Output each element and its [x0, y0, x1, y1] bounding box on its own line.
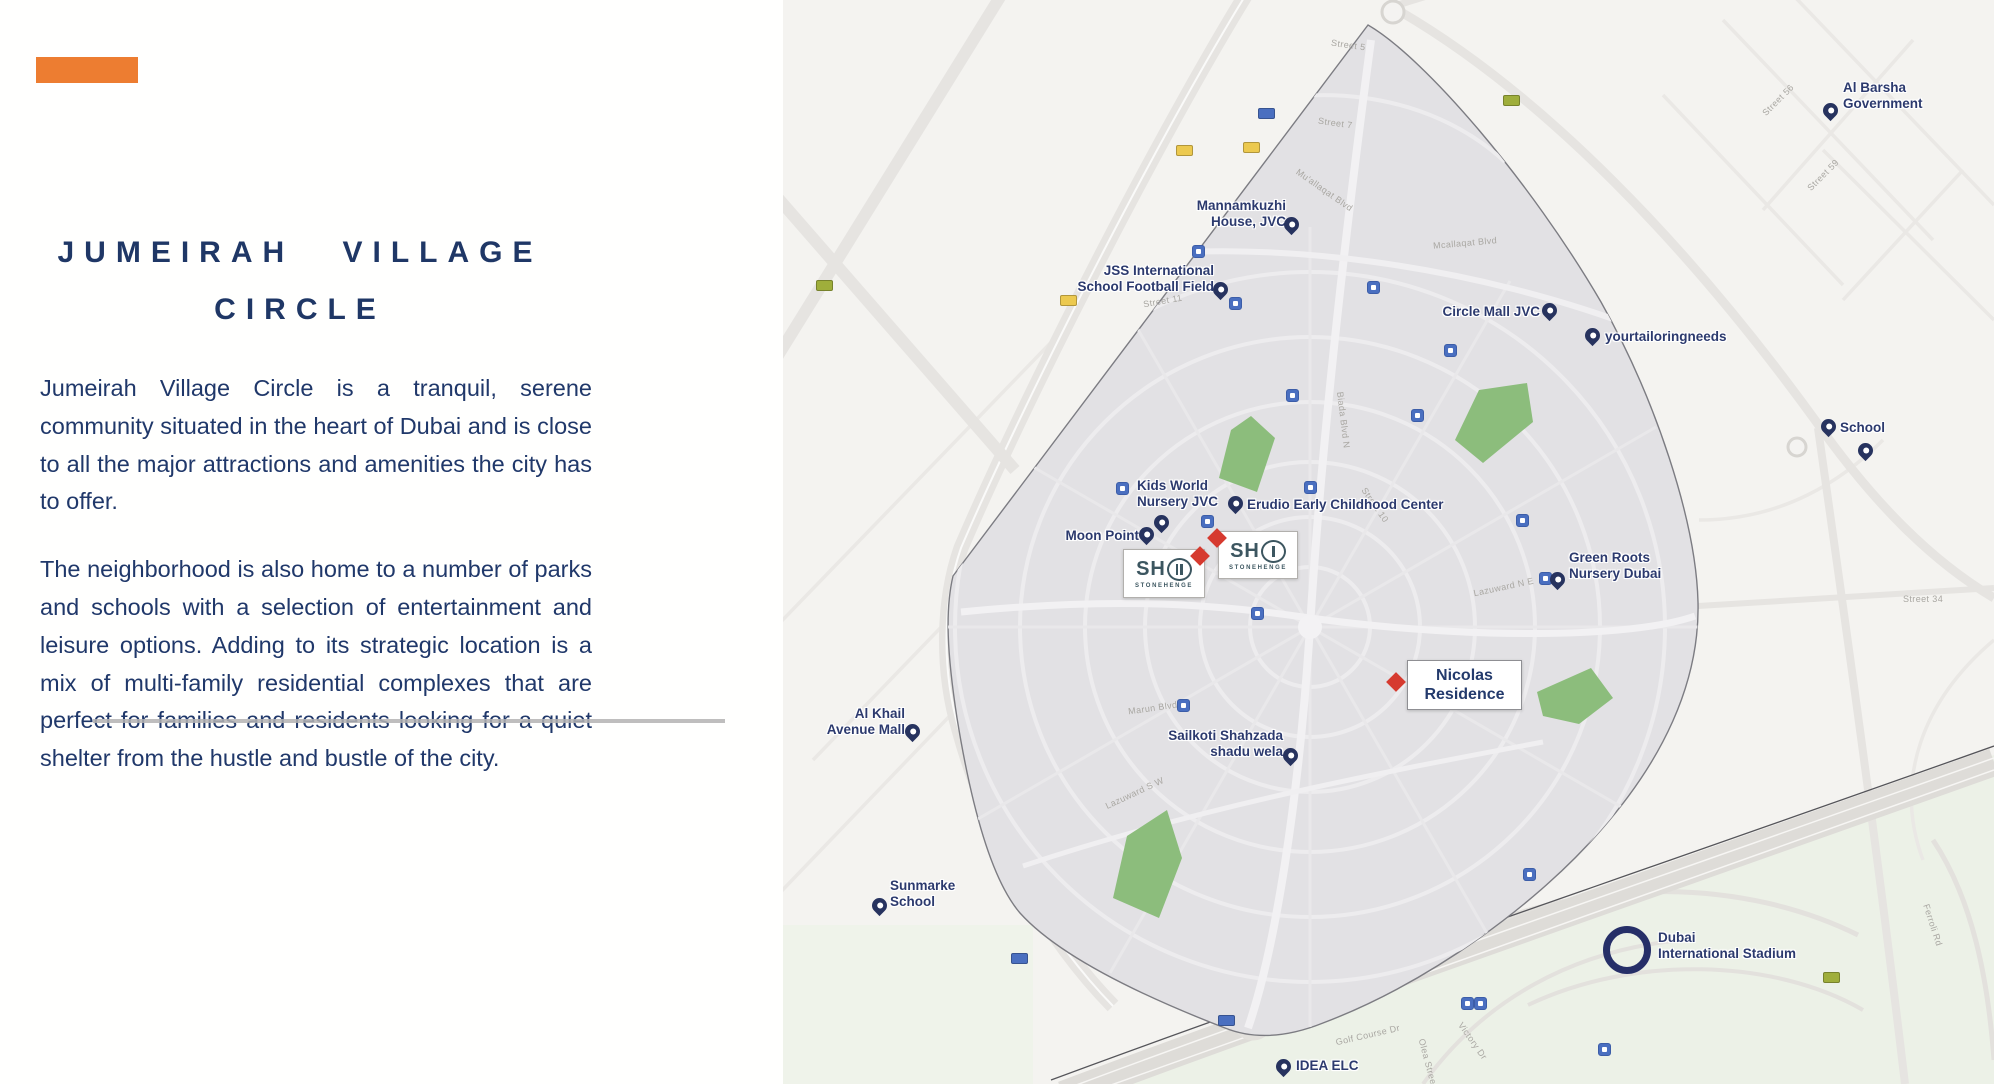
map-label-line: Government — [1843, 96, 1923, 112]
sho-logo-caption: STONEHENGE — [1229, 565, 1287, 571]
map-label-line: Sailkoti Shahzada — [1168, 728, 1283, 744]
map-label-line: School Football Field — [1078, 279, 1215, 295]
transit-stop-icon[interactable] — [1516, 514, 1529, 527]
sho-logo-bar — [1176, 564, 1179, 575]
transit-stop-icon[interactable] — [1523, 868, 1536, 881]
route-shield-icon — [1823, 972, 1840, 983]
map-label-line: Sunmarke — [890, 878, 955, 894]
page-title-line2: CIRCLE — [30, 281, 570, 338]
sho-logo: SH — [1136, 558, 1192, 581]
transit-stop-icon[interactable] — [1201, 515, 1214, 528]
route-shield-icon — [1243, 142, 1260, 153]
sho-logo-text: SH — [1136, 558, 1166, 581]
sho-logo: SH — [1230, 540, 1286, 563]
route-shield-icon — [1176, 145, 1193, 156]
transit-stop-icon[interactable] — [1304, 481, 1317, 494]
map-label-yourtailoringneeds[interactable]: yourtailoringneeds — [1605, 329, 1727, 345]
map-label-jss-international-school-football-field[interactable]: JSS InternationalSchool Football Field — [1078, 263, 1215, 294]
sho-logo-bar — [1272, 546, 1275, 557]
route-shield-icon — [1503, 95, 1520, 106]
roundabout — [1788, 438, 1806, 456]
transit-stop-icon[interactable] — [1229, 297, 1242, 310]
map-label-school[interactable]: School — [1840, 420, 1885, 436]
info-panel: JUMEIRAH VILLAGE CIRCLE Jumeirah Village… — [0, 0, 783, 1084]
dubai-international-stadium-icon[interactable] — [1603, 926, 1651, 974]
jvc-location-map[interactable]: Street 5Street 7Mu'allaqat BlvdMcallaqat… — [783, 0, 1994, 1084]
paragraph-1: Jumeirah Village Circle is a tranquil, s… — [40, 370, 592, 521]
transit-stop-icon[interactable] — [1598, 1043, 1611, 1056]
transit-stop-icon[interactable] — [1192, 245, 1205, 258]
map-label-line: School — [1840, 420, 1885, 436]
divider-line — [93, 719, 725, 723]
sho-logo-caption: STONEHENGE — [1135, 583, 1193, 589]
map-label-line: yourtailoringneeds — [1605, 329, 1727, 345]
map-label-line: Mannamkuzhi — [1197, 198, 1286, 214]
sho-logo-bar — [1180, 564, 1183, 575]
nicolas-residence-box[interactable]: NicolasResidence — [1407, 660, 1522, 710]
map-label-line: Moon Point — [1066, 528, 1139, 544]
map-label-line: Al Khail — [827, 706, 905, 722]
map-label-sailkoti-shahzada-shadu-wela[interactable]: Sailkoti Shahzadashadu wela — [1168, 728, 1283, 759]
map-label-line: Kids World — [1137, 478, 1218, 494]
map-base-svg — [783, 0, 1994, 1084]
page-title: JUMEIRAH VILLAGE CIRCLE — [30, 224, 570, 338]
accent-bar — [36, 57, 138, 83]
map-label-green-roots-nursery-dubai[interactable]: Green RootsNursery Dubai — [1569, 550, 1661, 581]
route-shield-icon — [1258, 108, 1275, 119]
transit-stop-icon[interactable] — [1444, 344, 1457, 357]
map-label-mannamkuzhi-house[interactable]: MannamkuzhiHouse, JVC — [1197, 198, 1286, 229]
nicolas-residence-line: Residence — [1424, 685, 1504, 704]
body-copy: Jumeirah Village Circle is a tranquil, s… — [40, 370, 592, 808]
map-label-al-barsha-government[interactable]: Al BarshaGovernment — [1843, 80, 1923, 111]
transit-stop-icon[interactable] — [1461, 997, 1474, 1010]
map-label-line: IDEA ELC — [1296, 1058, 1359, 1074]
map-label-line: House, JVC — [1197, 214, 1286, 230]
page-title-line1: JUMEIRAH VILLAGE — [30, 224, 570, 281]
map-label-line: Avenue Mall — [827, 722, 905, 738]
map-label-kids-world-nursery-jvc[interactable]: Kids WorldNursery JVC — [1137, 478, 1218, 509]
route-shield-icon — [1218, 1015, 1235, 1026]
map-label-circle-mall-jvc[interactable]: Circle Mall JVC — [1442, 304, 1540, 320]
logo-box-sho-stonehenge-1[interactable]: SHSTONEHENGE — [1218, 531, 1298, 579]
sho-logo-circle-icon — [1167, 558, 1192, 581]
map-label-line: JSS International — [1078, 263, 1215, 279]
route-shield-icon — [1011, 953, 1028, 964]
map-label-line: Circle Mall JVC — [1442, 304, 1540, 320]
map-label-line: Green Roots — [1569, 550, 1661, 566]
map-label-line: shadu wela — [1168, 744, 1283, 760]
transit-stop-icon[interactable] — [1367, 281, 1380, 294]
transit-stop-icon[interactable] — [1177, 699, 1190, 712]
map-label-erudio-early-childhood-center[interactable]: Erudio Early Childhood Center — [1247, 497, 1444, 513]
route-shield-icon — [1060, 295, 1077, 306]
map-label-line: School — [890, 894, 955, 910]
route-shield-icon — [816, 280, 833, 291]
map-label-line: International Stadium — [1658, 946, 1796, 962]
map-label-line: Al Barsha — [1843, 80, 1923, 96]
transit-stop-icon[interactable] — [1411, 409, 1424, 422]
sho-logo-circle-icon — [1261, 540, 1286, 563]
transit-stop-icon[interactable] — [1251, 607, 1264, 620]
street-name-label: Street 34 — [1903, 594, 1943, 604]
map-label-line: Erudio Early Childhood Center — [1247, 497, 1444, 513]
nicolas-residence-line: Nicolas — [1436, 666, 1493, 685]
map-label-moon-point[interactable]: Moon Point — [1066, 528, 1139, 544]
paragraph-2: The neighborhood is also home to a numbe… — [40, 551, 592, 778]
transit-stop-icon[interactable] — [1116, 482, 1129, 495]
map-label-line: Nursery JVC — [1137, 494, 1218, 510]
sho-logo-text: SH — [1230, 540, 1260, 563]
map-label-idea-elc[interactable]: IDEA ELC — [1296, 1058, 1359, 1074]
map-label-al-khail-avenue-mall[interactable]: Al KhailAvenue Mall — [827, 706, 905, 737]
transit-stop-icon[interactable] — [1474, 997, 1487, 1010]
map-label-sunmarke-school[interactable]: SunmarkeSchool — [890, 878, 955, 909]
southwest-green-zone — [783, 925, 1033, 1084]
map-label-line: Dubai — [1658, 930, 1796, 946]
transit-stop-icon[interactable] — [1286, 389, 1299, 402]
map-label-dubai-international-stadium[interactable]: DubaiInternational Stadium — [1658, 930, 1796, 961]
roundabout — [1382, 1, 1404, 23]
map-label-line: Nursery Dubai — [1569, 566, 1661, 582]
